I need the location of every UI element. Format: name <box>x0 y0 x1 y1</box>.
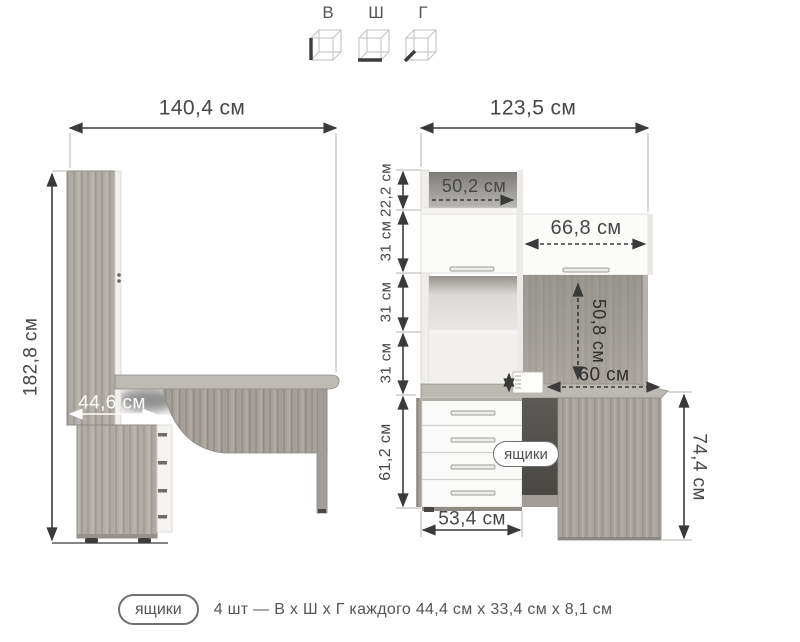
caption-text: 4 шт — В х Ш х Г каждого 44,4 см х 33,4 … <box>214 601 613 619</box>
dim-row1-height-label: 31 см <box>379 221 394 262</box>
dim-niche-height-label: 22,2 см <box>379 163 394 217</box>
furniture-dimensions-diagram: В Ш Г <box>0 0 800 642</box>
dim-row2-height-label: 31 см <box>379 282 394 323</box>
dim-back-height-label: 50,8 см <box>590 299 608 363</box>
dim-shelf-depth-label: 50,2 см <box>442 177 506 195</box>
dim-lower-depth-label: 44,6 см <box>78 394 146 413</box>
dim-drawers-width-label: 53,4 см <box>438 510 506 529</box>
caption: ящики 4 шт — В х Ш х Г каждого 44,4 см х… <box>118 594 612 625</box>
dim-desk-depth-label: 60 см <box>579 366 630 385</box>
dimension-lines <box>0 0 800 642</box>
dim-row3-height-label: 31 см <box>379 343 394 384</box>
dim-left-width-label: 140,4 см <box>159 98 246 119</box>
dim-right-width-label: 123,5 см <box>490 98 577 119</box>
caption-badge: ящики <box>118 594 199 625</box>
dim-door-width-label: 66,8 см <box>550 218 621 238</box>
dim-desk-height-label: 74,4 см <box>690 433 709 501</box>
drawers-badge: ящики <box>493 441 559 467</box>
dim-drawers-height-label: 61,2 см <box>378 423 394 480</box>
dim-left-height-label: 182,8 см <box>22 318 41 397</box>
